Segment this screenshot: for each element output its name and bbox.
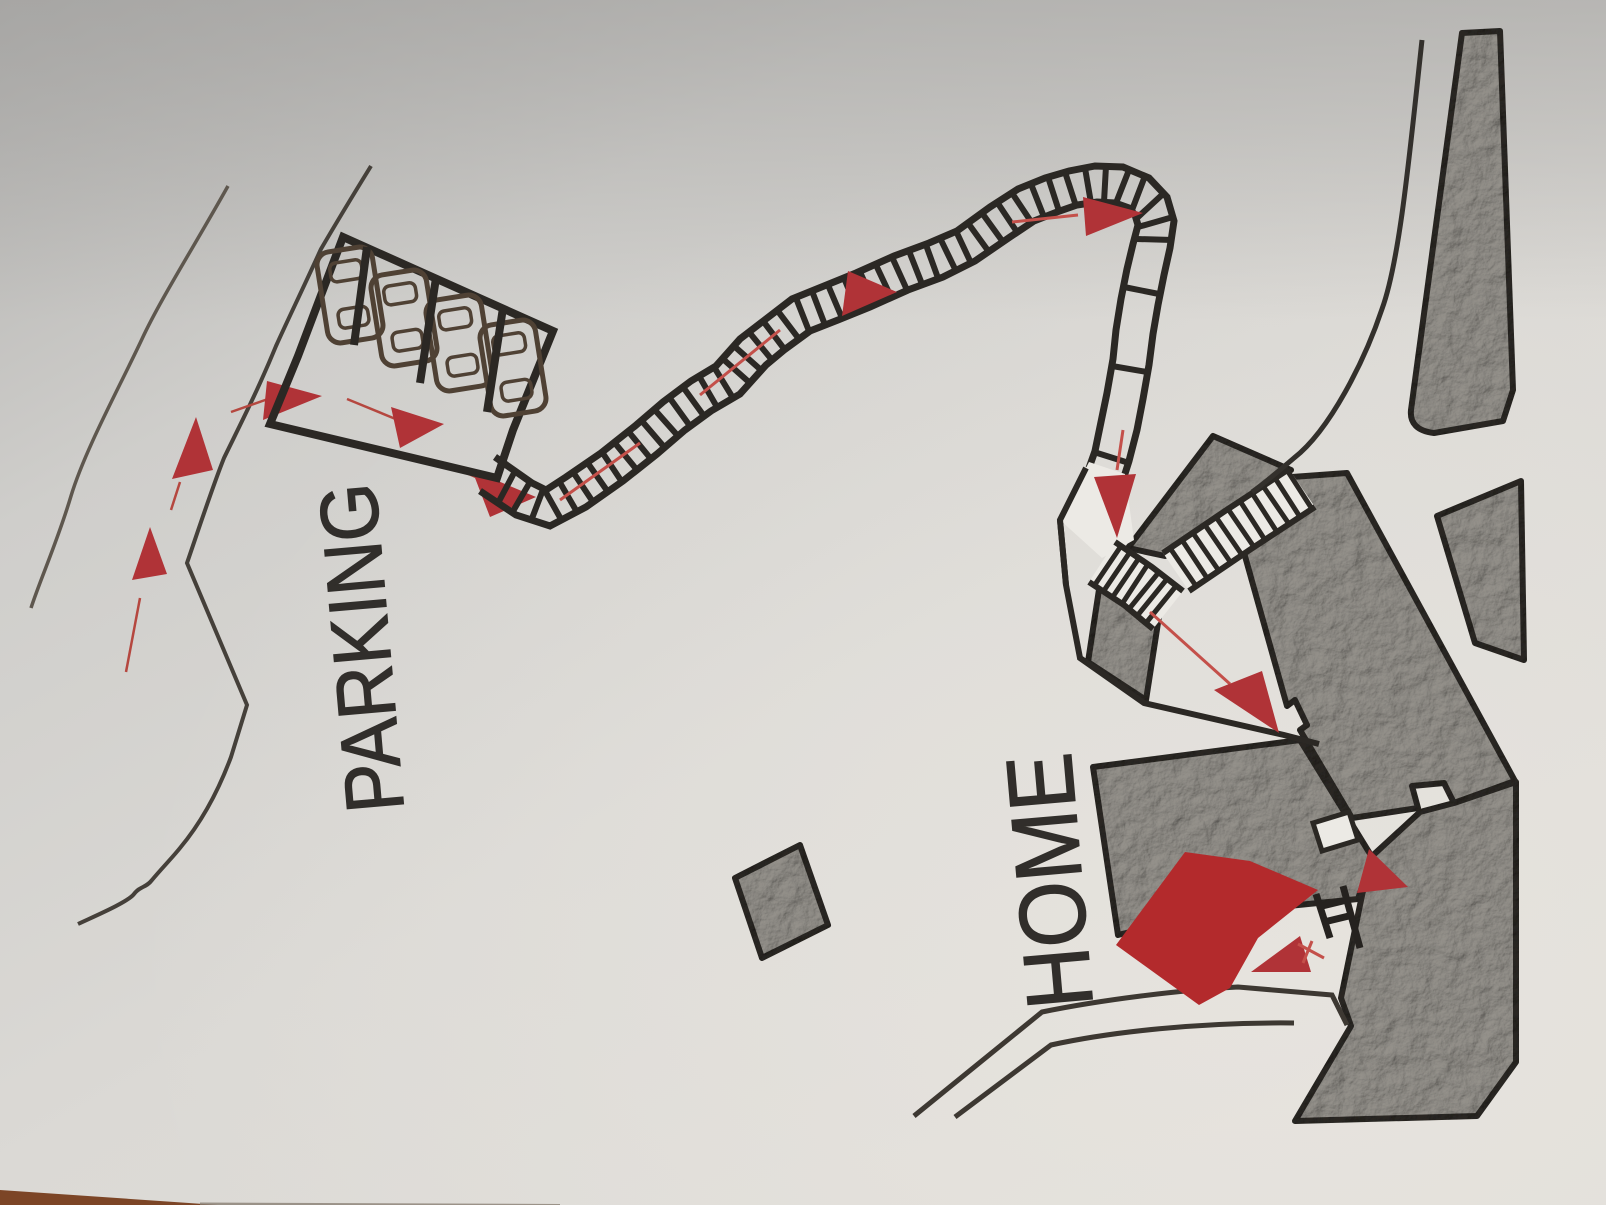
svg-text:HOME: HOME (986, 749, 1113, 1013)
